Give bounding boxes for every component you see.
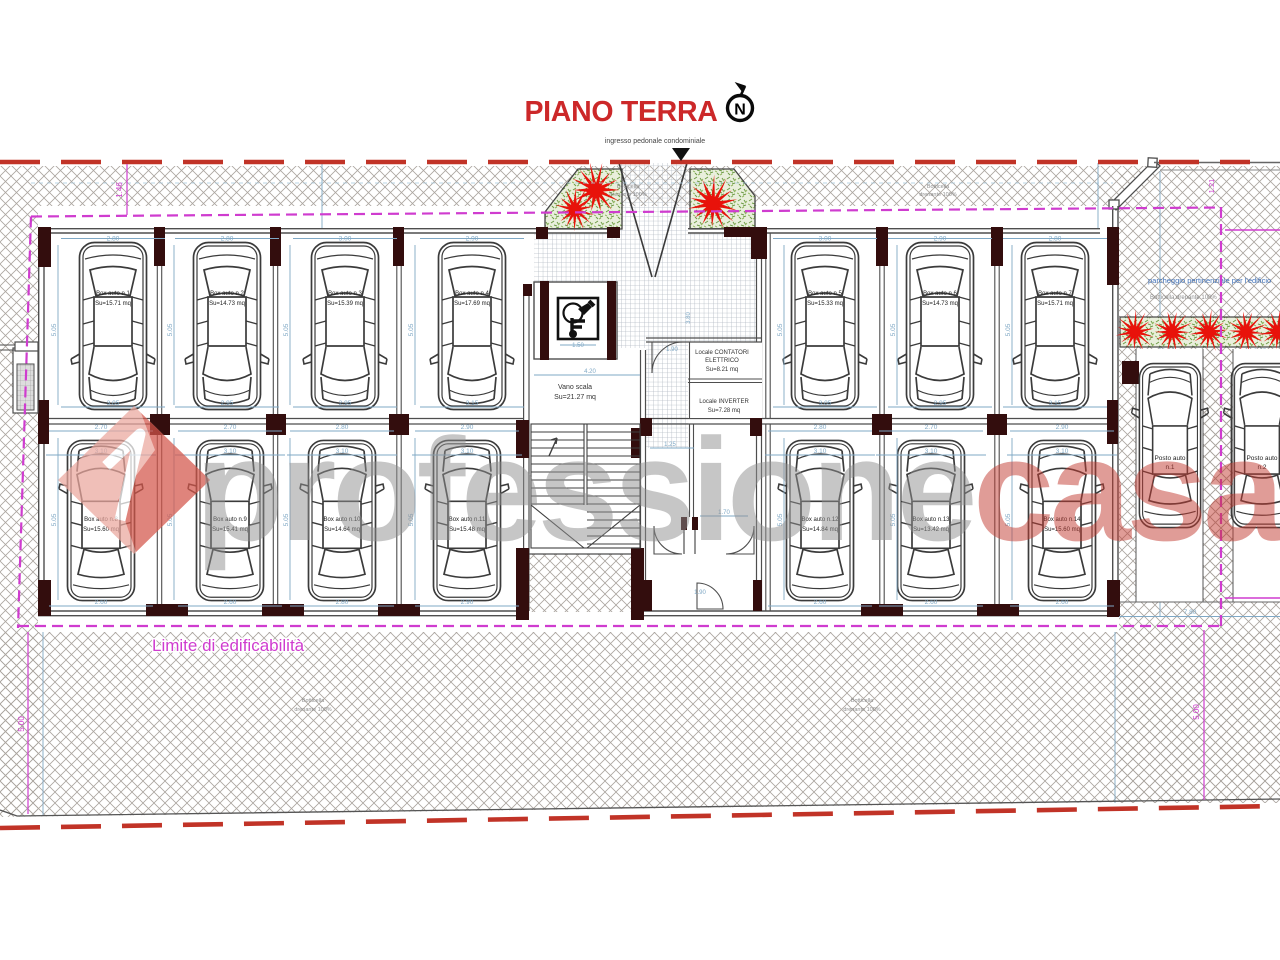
svg-text:Box auto n.7: Box auto n.7 [1038, 291, 1072, 297]
svg-text:Botticella: Botticella [851, 698, 874, 704]
svg-text:Botticella: Botticella [617, 184, 640, 190]
svg-text:Limite di edificabilità: Limite di edificabilità [152, 636, 305, 655]
svg-text:5.05: 5.05 [167, 323, 174, 336]
svg-text:Su=14.73 mq: Su=14.73 mq [922, 301, 958, 307]
svg-text:Vano scala: Vano scala [558, 384, 592, 391]
svg-text:2.60: 2.60 [925, 599, 938, 606]
svg-text:ingresso pedonale condominiale: ingresso pedonale condominiale [605, 138, 706, 145]
svg-text:5.00: 5.00 [1192, 704, 1201, 720]
svg-text:Su=15.39 mq: Su=15.39 mq [327, 301, 363, 307]
svg-text:5.05: 5.05 [890, 323, 897, 336]
svg-text:Su=8.21 mq: Su=8.21 mq [706, 367, 739, 373]
svg-text:5.00: 5.00 [17, 716, 26, 732]
svg-text:Su=15.71 mq: Su=15.71 mq [95, 301, 131, 307]
svg-text:5.05: 5.05 [283, 323, 290, 336]
svg-text:2.70: 2.70 [95, 424, 108, 431]
svg-text:2.80: 2.80 [1049, 236, 1062, 243]
svg-text:Box auto n.4: Box auto n.4 [455, 291, 489, 297]
svg-text:2.90: 2.90 [461, 599, 474, 606]
svg-text:3.15: 3.15 [1049, 400, 1062, 407]
svg-text:2.95: 2.95 [221, 400, 234, 407]
svg-text:Box auto n.3: Box auto n.3 [328, 291, 362, 297]
svg-text:2.80: 2.80 [107, 236, 120, 243]
svg-text:2.60: 2.60 [95, 599, 108, 606]
svg-text:3.05: 3.05 [107, 400, 120, 407]
svg-text:drenante 100%: drenante 100% [919, 192, 956, 198]
svg-text:5.05: 5.05 [408, 323, 415, 336]
svg-text:2.80: 2.80 [336, 599, 349, 606]
svg-text:N: N [734, 102, 746, 119]
svg-text:1.90: 1.90 [694, 590, 706, 596]
svg-text:7.80: 7.80 [1184, 609, 1197, 616]
svg-text:Su=15.71 mq: Su=15.71 mq [1037, 301, 1073, 307]
svg-text:Box auto n.6: Box auto n.6 [923, 291, 957, 297]
svg-text:Botticella drenante 100%: Botticella drenante 100% [1150, 295, 1217, 301]
svg-text:Box auto n.5: Box auto n.5 [808, 291, 842, 297]
svg-text:1.21: 1.21 [1207, 179, 1216, 194]
svg-text:drenante 100%: drenante 100% [294, 707, 331, 713]
svg-text:Su=17.69 mq: Su=17.69 mq [454, 301, 490, 307]
svg-text:drenante 100%: drenante 100% [609, 192, 646, 198]
svg-text:ELETTRICO: ELETTRICO [705, 358, 739, 364]
svg-text:4.20: 4.20 [584, 369, 596, 375]
svg-text:5.05: 5.05 [1005, 323, 1012, 336]
svg-text:PIANO TERRA: PIANO TERRA [524, 96, 717, 128]
svg-text:5.05: 5.05 [777, 323, 784, 336]
svg-text:5.05: 5.05 [51, 513, 58, 526]
svg-text:5.05: 5.05 [51, 323, 58, 336]
svg-text:Su=14.73 mq: Su=14.73 mq [209, 301, 245, 307]
svg-text:1.90: 1.90 [666, 347, 678, 353]
svg-text:Locale CONTATORI: Locale CONTATORI [695, 350, 749, 356]
svg-text:2.60: 2.60 [1056, 599, 1069, 606]
svg-text:1.46: 1.46 [115, 182, 124, 198]
svg-text:2.80: 2.80 [221, 236, 234, 243]
svg-text:2.60: 2.60 [814, 599, 827, 606]
svg-text:3.05: 3.05 [819, 400, 832, 407]
svg-text:3.15: 3.15 [466, 400, 479, 407]
svg-text:drenante 100%: drenante 100% [843, 707, 880, 713]
svg-text:3.00: 3.00 [339, 236, 352, 243]
svg-text:Box auto n.2: Box auto n.2 [210, 291, 244, 297]
svg-text:2.60: 2.60 [224, 599, 237, 606]
svg-text:Botticella: Botticella [927, 184, 950, 190]
svg-text:Su=15.33 mq: Su=15.33 mq [807, 301, 843, 307]
svg-text:parcheggio pertinenziale per l: parcheggio pertinenziale per l'edificio [1148, 276, 1271, 285]
svg-text:Box auto n.1: Box auto n.1 [96, 291, 130, 297]
svg-text:2.95: 2.95 [339, 400, 352, 407]
svg-text:Botticella: Botticella [302, 698, 325, 704]
svg-text:3.80: 3.80 [686, 312, 692, 324]
svg-text:professionecasa: professionecasa [195, 408, 1280, 571]
svg-text:1.50: 1.50 [572, 343, 584, 349]
svg-text:2.90: 2.90 [934, 236, 947, 243]
svg-text:2.90: 2.90 [466, 236, 479, 243]
svg-text:Locale INVERTER: Locale INVERTER [699, 399, 749, 405]
svg-text:3.00: 3.00 [819, 236, 832, 243]
svg-text:2.95: 2.95 [934, 400, 947, 407]
svg-text:Su=21.27 mq: Su=21.27 mq [554, 394, 596, 401]
